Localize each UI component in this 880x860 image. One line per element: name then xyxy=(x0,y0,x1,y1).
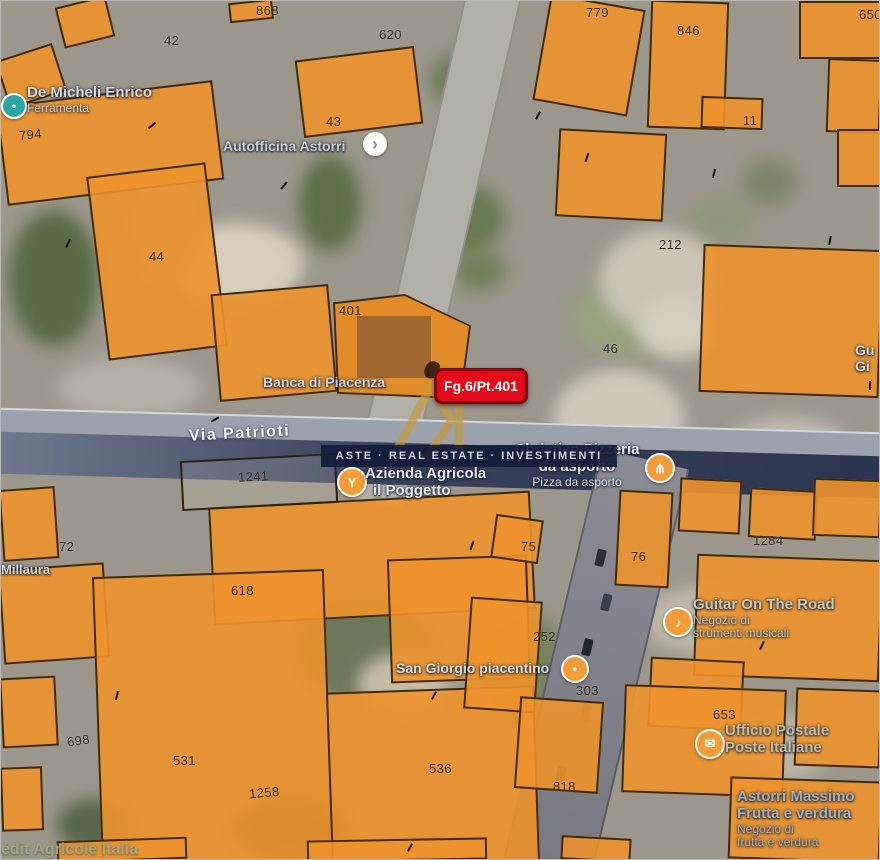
parcel-number: 46 xyxy=(603,341,618,356)
parcel-number: 75 xyxy=(521,539,536,554)
satellite-texture xyxy=(743,159,795,205)
parcel-number: 620 xyxy=(379,27,402,42)
parcel-number: 1258 xyxy=(248,784,280,802)
parcel-number: 252 xyxy=(533,629,556,644)
satellite-texture xyxy=(689,199,751,241)
cadastral-parcel[interactable] xyxy=(55,0,116,49)
poi-subtitle: frutta e verdura xyxy=(737,836,855,849)
cadastral-parcel[interactable] xyxy=(92,569,334,860)
cadastral-parcel[interactable] xyxy=(555,128,667,222)
boundary-tick xyxy=(712,169,716,178)
poi-poste[interactable]: Ufficio Postale Poste Italiane xyxy=(725,723,829,757)
poi-banca[interactable]: Banca di Piacenza xyxy=(263,375,385,391)
cadastral-parcel[interactable] xyxy=(0,486,59,562)
parcel-number: 531 xyxy=(173,753,196,768)
poi-name: Frutta e verdura xyxy=(737,806,855,823)
parcel-number: 846 xyxy=(677,23,700,38)
hardware-store-pin-icon[interactable]: • xyxy=(1,93,27,119)
subject-parcel-marker[interactable]: Fg.6/Pt.401 xyxy=(434,368,528,404)
parcel-number: 76 xyxy=(631,549,646,564)
cadastral-parcel[interactable] xyxy=(812,478,880,538)
poi-autofficina[interactable]: Autofficina Astorri xyxy=(223,139,345,155)
poi-astorri[interactable]: Astorri Massimo Frutta e verdura Negozio… xyxy=(737,789,855,849)
parcel-number: 44 xyxy=(149,249,164,264)
cadastral-parcel[interactable] xyxy=(615,490,674,589)
locality-pin-icon[interactable]: • xyxy=(561,655,589,683)
cadastral-parcel[interactable] xyxy=(678,477,743,534)
parcel-number: 618 xyxy=(231,583,254,598)
dot-icon: • xyxy=(12,99,16,113)
poi-name: Gi xyxy=(855,359,874,375)
vehicle xyxy=(600,593,613,612)
parcel-number: 1241 xyxy=(238,468,269,485)
vehicle xyxy=(594,549,607,568)
parcel-number: 303 xyxy=(576,683,599,698)
goblet-icon: Y xyxy=(348,475,357,490)
parcel-number: 698 xyxy=(66,731,91,749)
poi-name: Astorri Massimo xyxy=(737,789,855,806)
parcel-number: 818 xyxy=(553,779,576,794)
cadastral-parcel[interactable] xyxy=(0,676,59,749)
restaurant-pin-icon[interactable]: ⋔ xyxy=(645,453,675,483)
boundary-tick xyxy=(535,111,541,120)
parcel-number: 536 xyxy=(429,761,452,776)
music-note-icon: ♪ xyxy=(675,614,682,630)
parcel-number: 11 xyxy=(743,113,757,128)
cadastral-parcel[interactable] xyxy=(0,766,44,831)
poi-subtitle: strumenti musicali xyxy=(693,627,835,640)
parcel-number: 779 xyxy=(586,5,609,20)
watermark-brand-band: ASTE · REAL ESTATE · INVESTIMENTI xyxy=(321,445,617,467)
poi-de-micheli[interactable]: De Micheli Enrico Ferramenta xyxy=(27,85,152,115)
cadastral-parcel[interactable] xyxy=(463,597,543,714)
map-canvas[interactable]: 868 620 42 43 779 846 650 11 794 44 401 … xyxy=(0,0,880,860)
parcel-number: 868 xyxy=(256,3,279,18)
poi-millaura[interactable]: Millaura xyxy=(1,563,50,578)
poi-name: il Poggetto xyxy=(373,483,486,500)
chevron-icon: › xyxy=(372,134,378,155)
poi-guitar[interactable]: Guitar On The Road Negozio di strumenti … xyxy=(693,597,835,641)
poi-name: Ufficio Postale xyxy=(725,723,829,740)
cadastral-parcel[interactable] xyxy=(307,837,487,860)
envelope-icon: ✉ xyxy=(705,736,716,752)
boundary-tick xyxy=(828,236,832,245)
parcel-number: 1284 xyxy=(753,533,784,548)
cadastral-parcel[interactable] xyxy=(698,244,880,398)
roof-shadow xyxy=(357,316,431,378)
satellite-texture xyxy=(9,211,99,346)
poi-azienda[interactable]: Azienda Agricola il Poggetto xyxy=(365,466,486,500)
satellite-texture xyxy=(299,156,361,251)
poi-subtitle: Ferramenta xyxy=(27,102,152,115)
dot-icon: • xyxy=(573,662,577,676)
poi-credit-agricole[interactable]: édit Agricole Italia xyxy=(1,841,138,859)
cadastral-parcel[interactable] xyxy=(295,46,424,138)
poi-name: De Micheli Enrico xyxy=(27,85,152,102)
farm-shop-pin-icon[interactable]: Y xyxy=(337,467,367,497)
parcel-number: 653 xyxy=(713,707,736,722)
parcel-number: 794 xyxy=(18,126,42,143)
cadastral-parcel[interactable] xyxy=(826,58,880,134)
fork-knife-icon: ⋔ xyxy=(654,460,666,477)
poi-partial-right[interactable]: Gu Gi xyxy=(855,343,874,374)
poi-name: Poste Italiane xyxy=(725,740,829,757)
auto-repair-pin-icon[interactable]: › xyxy=(363,132,387,156)
poi-name: Azienda Agricola xyxy=(365,466,486,483)
poi-name: Guitar On The Road xyxy=(693,597,835,614)
parcel-number: 212 xyxy=(659,237,682,252)
parcel-number: 43 xyxy=(326,114,341,129)
poi-name: Gu xyxy=(855,343,874,359)
parcel-number: 42 xyxy=(164,33,179,48)
poi-subtitle: Pizza da asporto xyxy=(507,476,647,489)
music-shop-pin-icon[interactable]: ♪ xyxy=(663,607,693,637)
parcel-number: 72 xyxy=(59,539,74,554)
parcel-number: 650 xyxy=(859,7,880,22)
boundary-tick xyxy=(280,181,287,189)
parcel-number: 401 xyxy=(339,303,362,318)
boundary-tick xyxy=(869,381,871,390)
cadastral-parcel[interactable] xyxy=(837,129,880,187)
post-office-pin-icon[interactable]: ✉ xyxy=(695,729,725,759)
vehicle xyxy=(581,638,594,657)
cadastral-parcel[interactable] xyxy=(560,835,631,860)
poi-san-giorgio[interactable]: San Giorgio piacentino xyxy=(396,661,549,677)
